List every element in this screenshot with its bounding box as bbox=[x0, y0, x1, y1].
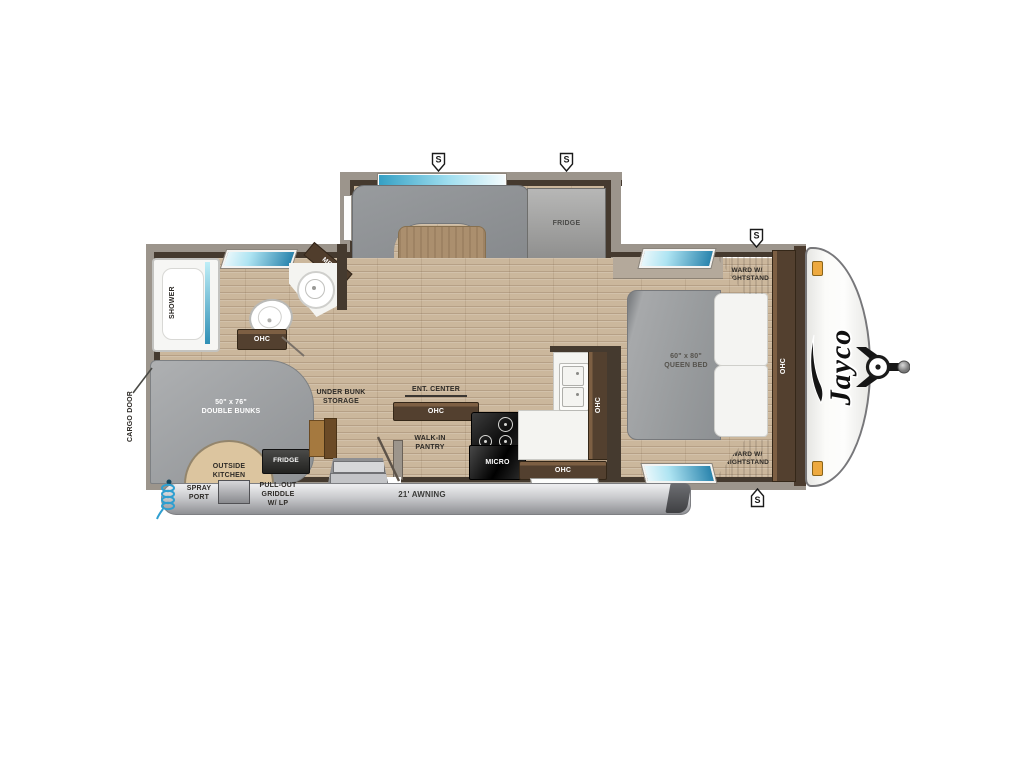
marker-light bbox=[812, 261, 823, 276]
counter-end-wall bbox=[550, 346, 608, 352]
sink-faucet bbox=[576, 372, 579, 375]
ent-center-ohc-label: OHC bbox=[428, 407, 444, 416]
pantry-wall bbox=[393, 440, 403, 480]
bathroom-window bbox=[221, 250, 297, 268]
microwave-label: MICRO bbox=[485, 458, 509, 467]
storage-stool bbox=[309, 418, 336, 457]
sink-faucet bbox=[576, 393, 579, 396]
bed-pillow bbox=[714, 365, 768, 437]
entry-step bbox=[333, 461, 385, 473]
svg-text:S: S bbox=[435, 155, 441, 165]
bedroom-ohc: OHC bbox=[772, 250, 796, 482]
speaker-icon: S bbox=[431, 152, 446, 173]
speaker-icon: S bbox=[750, 487, 765, 508]
marker-light bbox=[812, 461, 823, 476]
awning-label: 21' AWNING bbox=[386, 490, 458, 500]
stove-burner bbox=[498, 417, 513, 432]
slide-fridge-label: FRIDGE bbox=[553, 219, 581, 228]
bedroom-window-bottom bbox=[642, 464, 717, 483]
sink-basin bbox=[562, 366, 584, 386]
spray-port-label: SPRAY PORT bbox=[178, 484, 220, 502]
bedroom-window-top bbox=[639, 249, 716, 268]
rv-floorplan: FRIDGE SHOWER MED OHC 50" x 76" DOUBLE B… bbox=[0, 0, 1024, 768]
double-bunks-label: 50" x 76" DOUBLE BUNKS bbox=[166, 398, 296, 416]
hitch-tongue bbox=[856, 339, 910, 395]
kitchen-ohc-side-label: OHC bbox=[594, 397, 603, 413]
svg-text:S: S bbox=[754, 495, 760, 505]
speaker-icon: S bbox=[559, 152, 574, 173]
queen-bed-label: 60" x 80" QUEEN BED bbox=[648, 352, 724, 370]
ent-center-label: ENT. CENTER bbox=[405, 385, 467, 397]
brand-bird-icon bbox=[808, 327, 824, 407]
shower-glass bbox=[205, 262, 210, 344]
under-bunk-storage-label: UNDER BUNK STORAGE bbox=[310, 388, 372, 406]
svg-text:S: S bbox=[563, 155, 569, 165]
shower-label: SHOWER bbox=[168, 270, 177, 336]
svg-text:S: S bbox=[753, 231, 759, 241]
kitchen-sink bbox=[559, 363, 589, 411]
ent-center-ohc: OHC bbox=[393, 402, 479, 421]
shower: SHOWER bbox=[152, 258, 220, 352]
bathroom-ohc: OHC bbox=[237, 329, 287, 350]
walk-in-pantry-label: WALK-IN PANTRY bbox=[399, 434, 461, 452]
sink-drain bbox=[312, 286, 316, 290]
outside-kitchen-label: OUTSIDE KITCHEN bbox=[213, 462, 246, 480]
outside-kitchen-fridge: FRIDGE bbox=[262, 449, 310, 474]
outside-fridge-label: FRIDGE bbox=[273, 457, 299, 465]
bedroom-ohc-label: OHC bbox=[779, 358, 788, 374]
cargo-door-label: CARGO DOOR bbox=[126, 386, 135, 448]
kitchen-counter-bottom bbox=[518, 410, 592, 460]
kitchen-bedroom-wall bbox=[607, 346, 621, 478]
pull-out-griddle bbox=[218, 480, 250, 504]
bathroom-ohc-label: OHC bbox=[254, 335, 270, 344]
brand-logo-text: Jayco bbox=[824, 329, 858, 406]
slide-fridge: FRIDGE bbox=[527, 188, 606, 260]
bathroom-sink-bowl bbox=[297, 271, 335, 309]
kitchen-ohc-lower-label: OHC bbox=[555, 466, 571, 475]
bathroom-partition-wall bbox=[337, 244, 347, 310]
pull-out-griddle-label: PULL-OUT GRIDDLE W/ LP bbox=[250, 481, 306, 508]
brand-logo: Jayco bbox=[807, 292, 859, 442]
slide-side-window bbox=[343, 195, 352, 241]
sink-basin bbox=[562, 387, 584, 407]
stool-back bbox=[324, 418, 337, 459]
speaker-icon: S bbox=[749, 228, 764, 249]
